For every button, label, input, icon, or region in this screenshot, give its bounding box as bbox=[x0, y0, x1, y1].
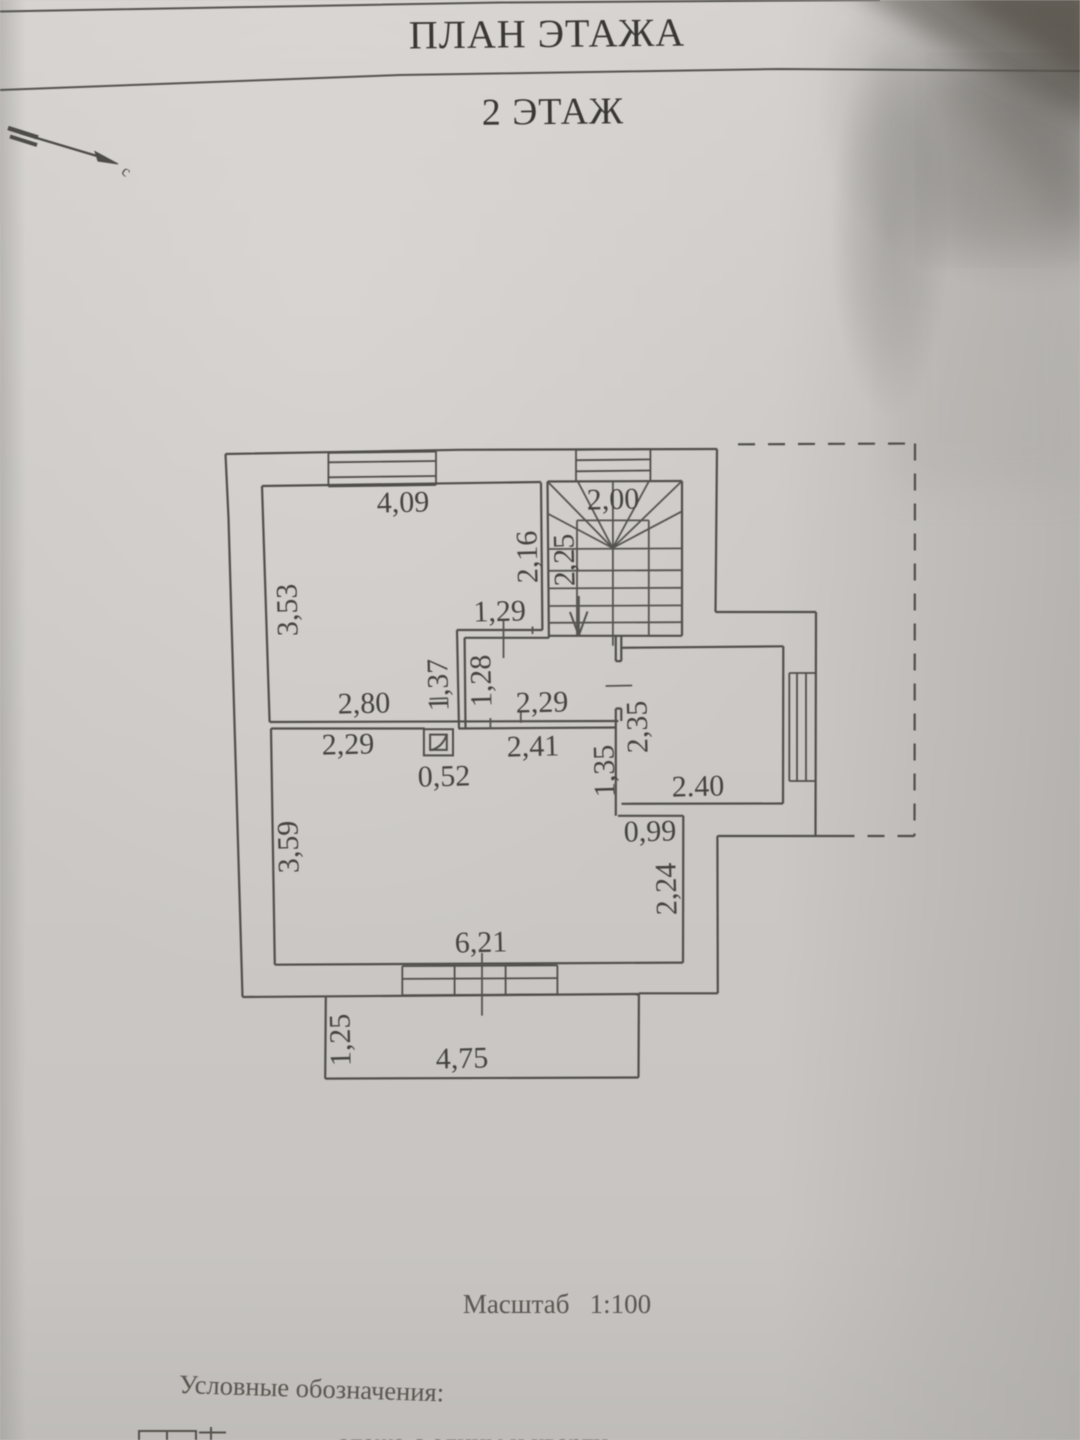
svg-text:2,80: 2,80 bbox=[337, 686, 390, 720]
svg-text:этажа с одним и кварти: этажа с одним и кварти bbox=[339, 1428, 608, 1440]
svg-text:2,35: 2,35 bbox=[620, 700, 654, 753]
svg-text:1,37: 1,37 bbox=[421, 658, 455, 711]
svg-text:4,09: 4,09 bbox=[376, 485, 429, 519]
svg-text:1,29: 1,29 bbox=[473, 594, 526, 628]
svg-text:2 ЭТАЖ: 2 ЭТАЖ bbox=[481, 90, 624, 133]
svg-text:2,29: 2,29 bbox=[321, 727, 374, 761]
svg-text:2,29: 2,29 bbox=[515, 685, 568, 719]
svg-text:1,25: 1,25 bbox=[323, 1013, 357, 1066]
svg-text:Масштаб 1:100: Масштаб 1:100 bbox=[463, 1289, 651, 1319]
svg-text:2,16: 2,16 bbox=[510, 530, 544, 583]
svg-text:3,59: 3,59 bbox=[271, 820, 305, 873]
svg-text:2,00: 2,00 bbox=[586, 482, 639, 516]
svg-text:1,28: 1,28 bbox=[464, 654, 498, 707]
svg-text:ПЛАН ЭТАЖА: ПЛАН ЭТАЖА bbox=[409, 10, 686, 58]
svg-text:0,99: 0,99 bbox=[623, 814, 676, 848]
svg-text:4,75: 4,75 bbox=[435, 1041, 488, 1075]
svg-text:2,25: 2,25 bbox=[547, 533, 581, 586]
svg-text:6,21: 6,21 bbox=[454, 925, 507, 959]
svg-text:2.40: 2.40 bbox=[671, 769, 724, 803]
svg-text:2,24: 2,24 bbox=[649, 862, 683, 915]
svg-text:2,41: 2,41 bbox=[506, 729, 559, 763]
svg-text:3,53: 3,53 bbox=[270, 583, 304, 636]
svg-text:0,52: 0,52 bbox=[417, 759, 470, 793]
svg-text:1,35: 1,35 bbox=[587, 744, 621, 797]
